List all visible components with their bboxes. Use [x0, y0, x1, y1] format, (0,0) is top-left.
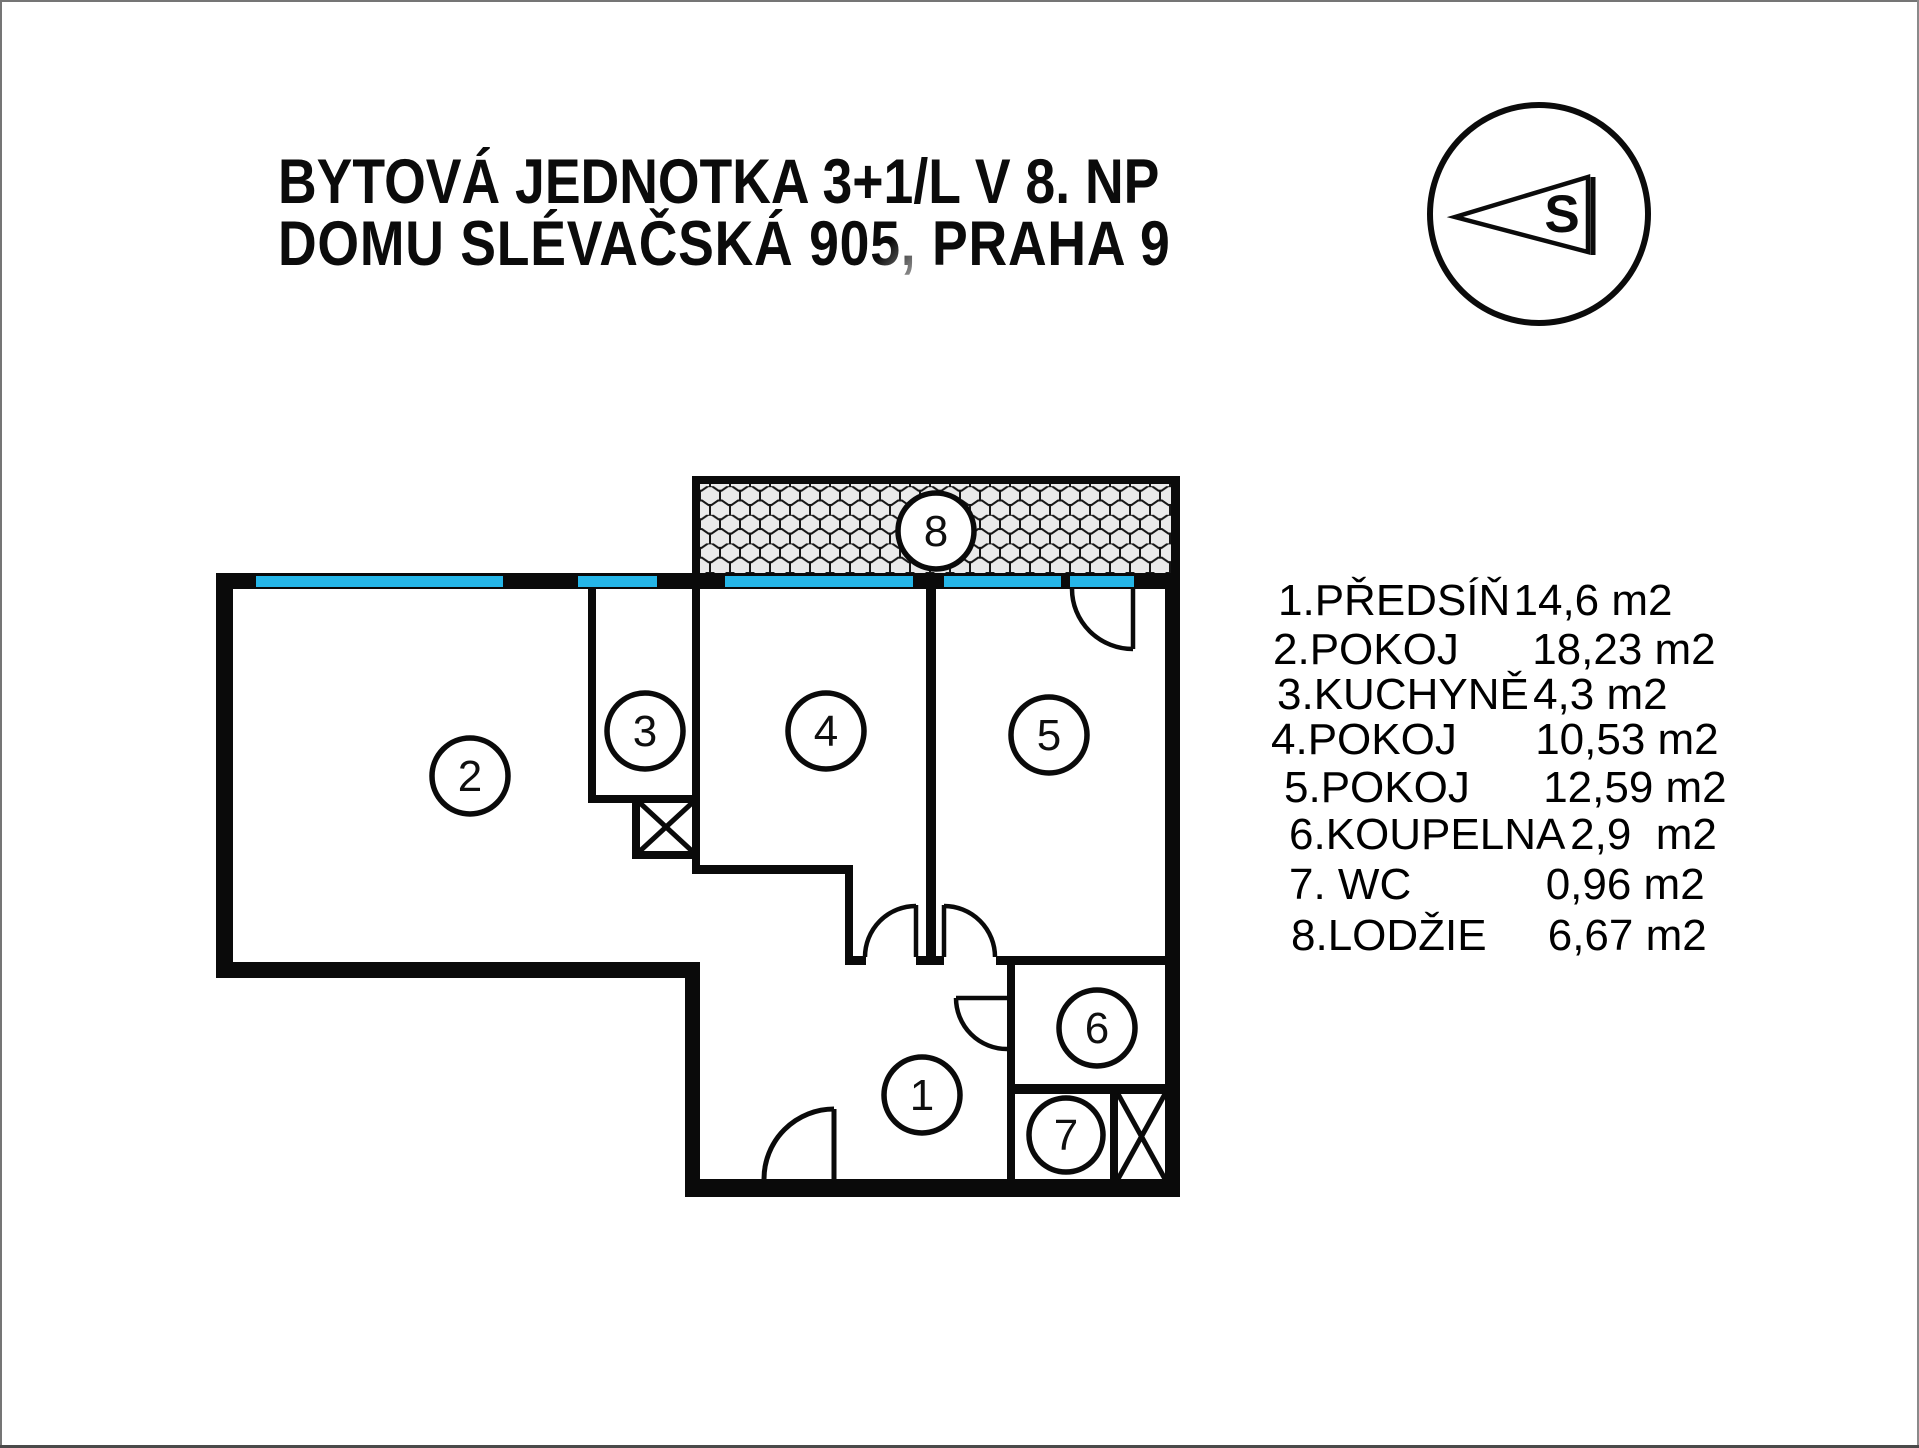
svg-text:1: 1 — [910, 1071, 934, 1120]
svg-text:5: 5 — [1037, 711, 1061, 760]
svg-text:2: 2 — [458, 752, 482, 801]
svg-text:6: 6 — [1085, 1004, 1109, 1053]
svg-text:3: 3 — [633, 707, 657, 756]
svg-text:4: 4 — [814, 707, 838, 756]
svg-text:7: 7 — [1054, 1111, 1078, 1160]
svg-text:8: 8 — [924, 507, 948, 556]
